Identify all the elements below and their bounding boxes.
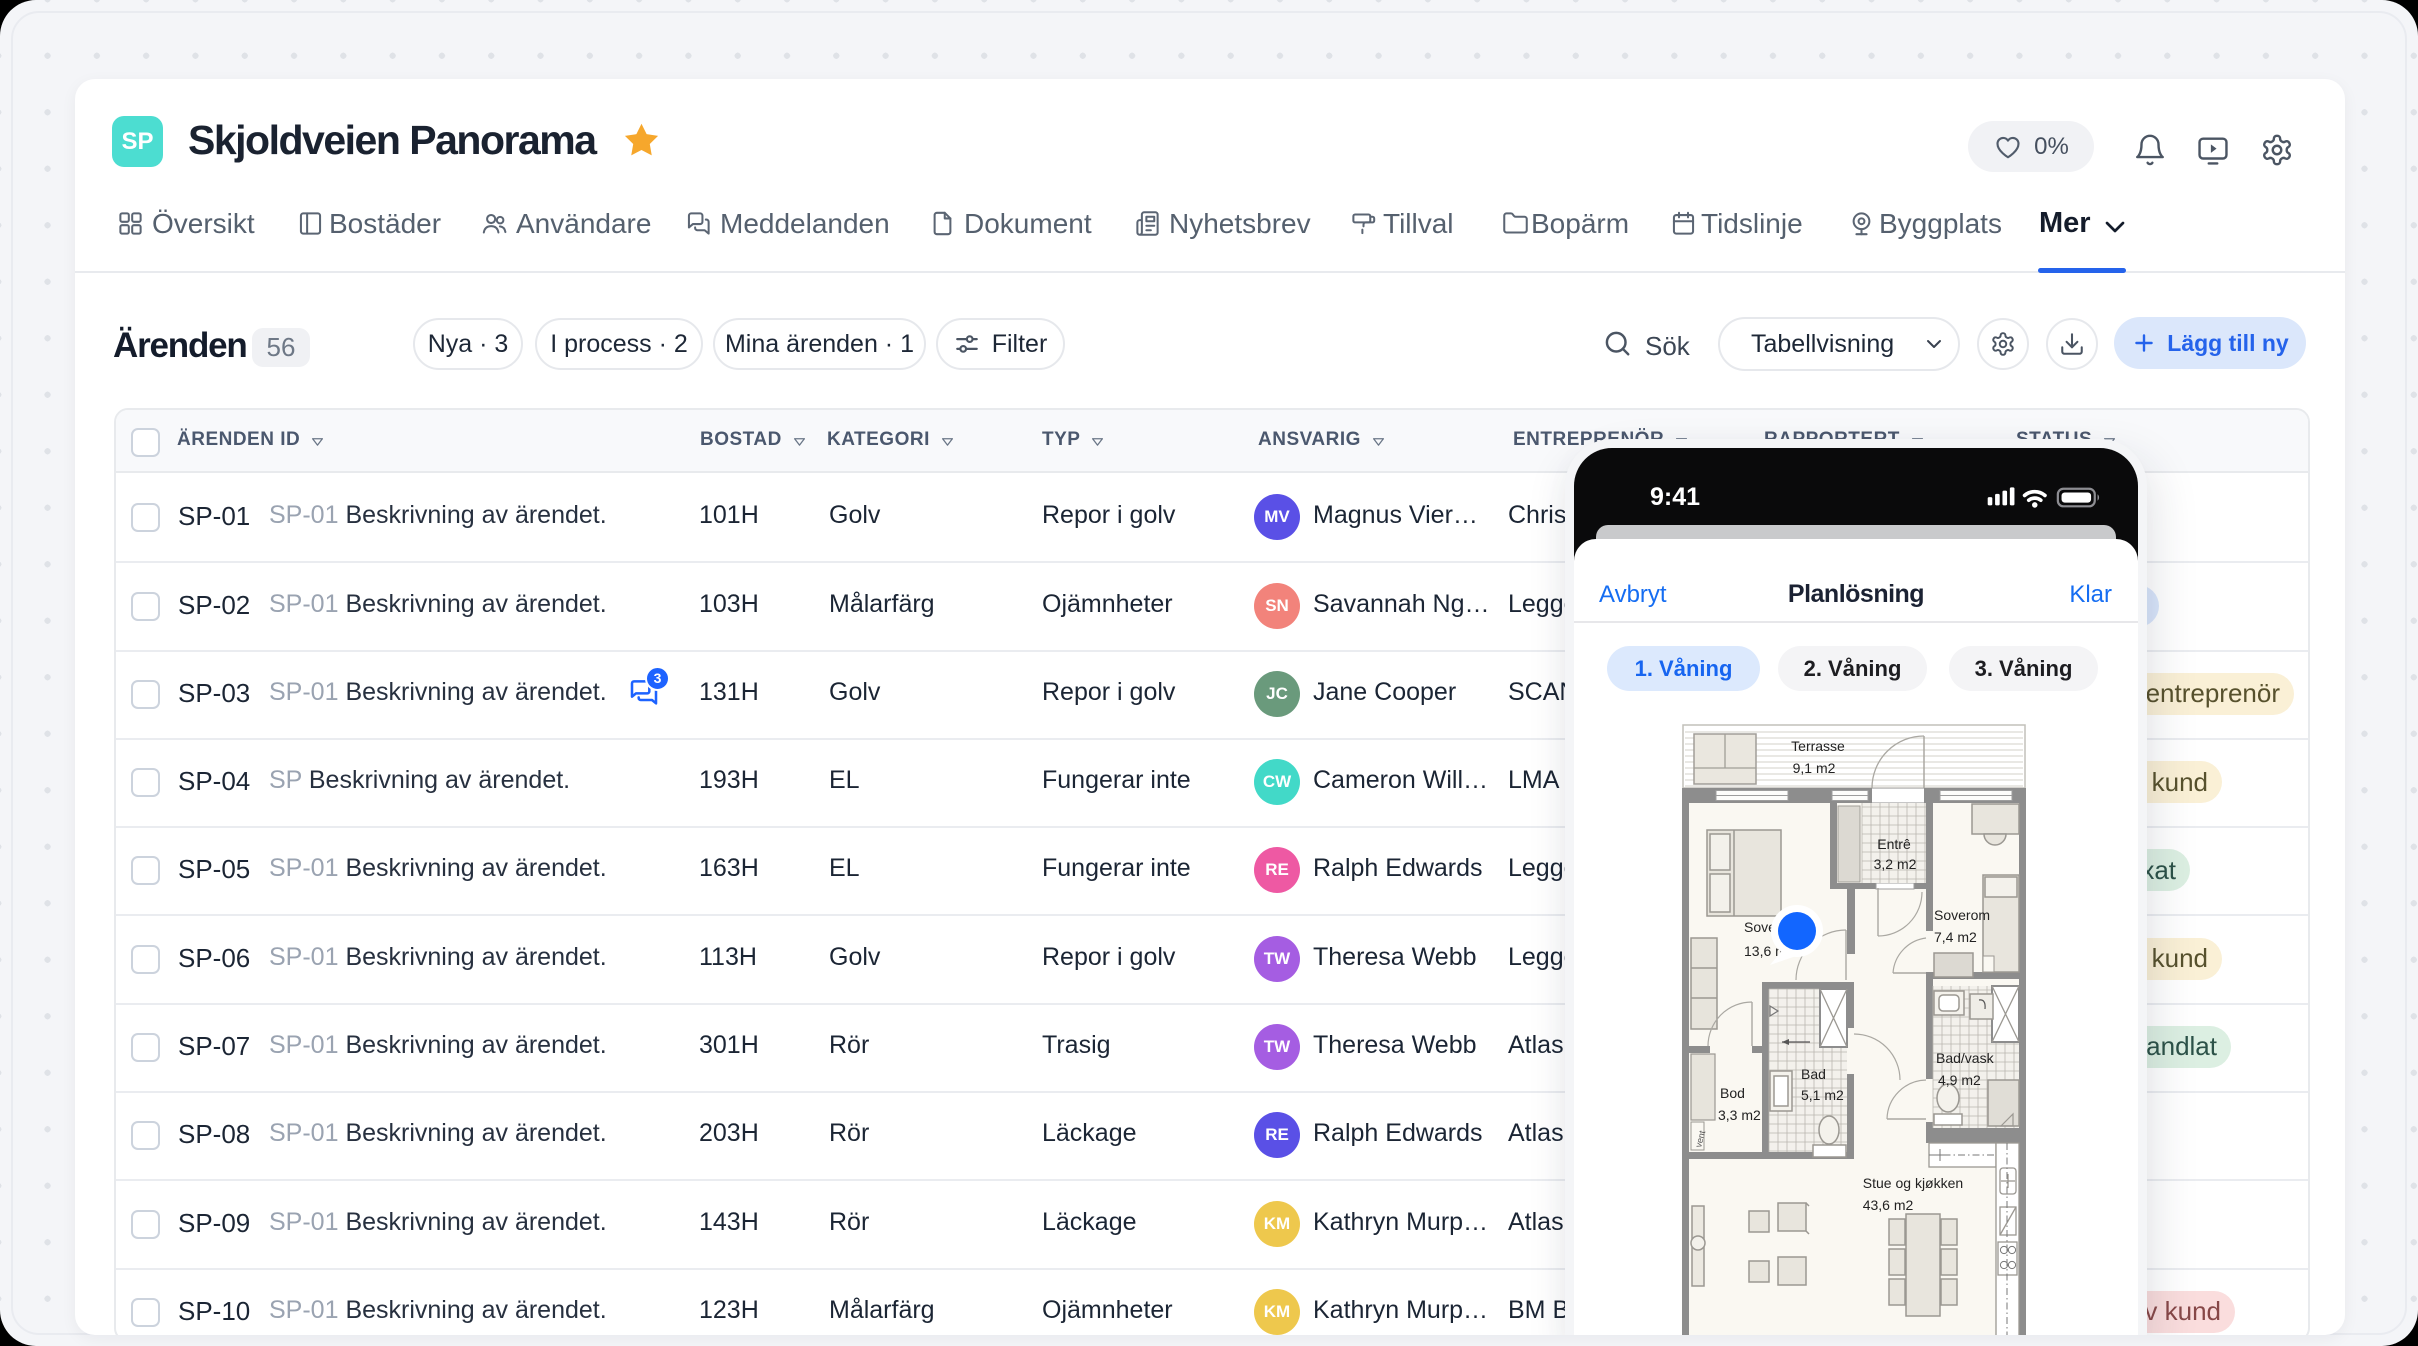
svg-text:Entrê: Entrê [1877, 836, 1911, 852]
svg-text:Bad: Bad [1801, 1066, 1826, 1082]
svg-text:5,1 m2: 5,1 m2 [1801, 1087, 1844, 1103]
svg-text:9,1 m2: 9,1 m2 [1793, 760, 1836, 776]
svg-text:Bod: Bod [1720, 1085, 1745, 1101]
svg-text:3,2 m2: 3,2 m2 [1874, 856, 1917, 872]
svg-text:Stue og kjøkken: Stue og kjøkken [1863, 1175, 1963, 1191]
svg-text:7,4 m2: 7,4 m2 [1934, 929, 1977, 945]
svg-text:3,3 m2: 3,3 m2 [1718, 1107, 1761, 1123]
svg-text:Terrasse: Terrasse [1791, 738, 1845, 754]
svg-text:Soverom: Soverom [1934, 907, 1990, 923]
svg-text:4,9 m2: 4,9 m2 [1938, 1072, 1981, 1088]
svg-text:43,6 m2: 43,6 m2 [1863, 1197, 1914, 1213]
svg-text:Bad/vask: Bad/vask [1936, 1050, 1995, 1066]
